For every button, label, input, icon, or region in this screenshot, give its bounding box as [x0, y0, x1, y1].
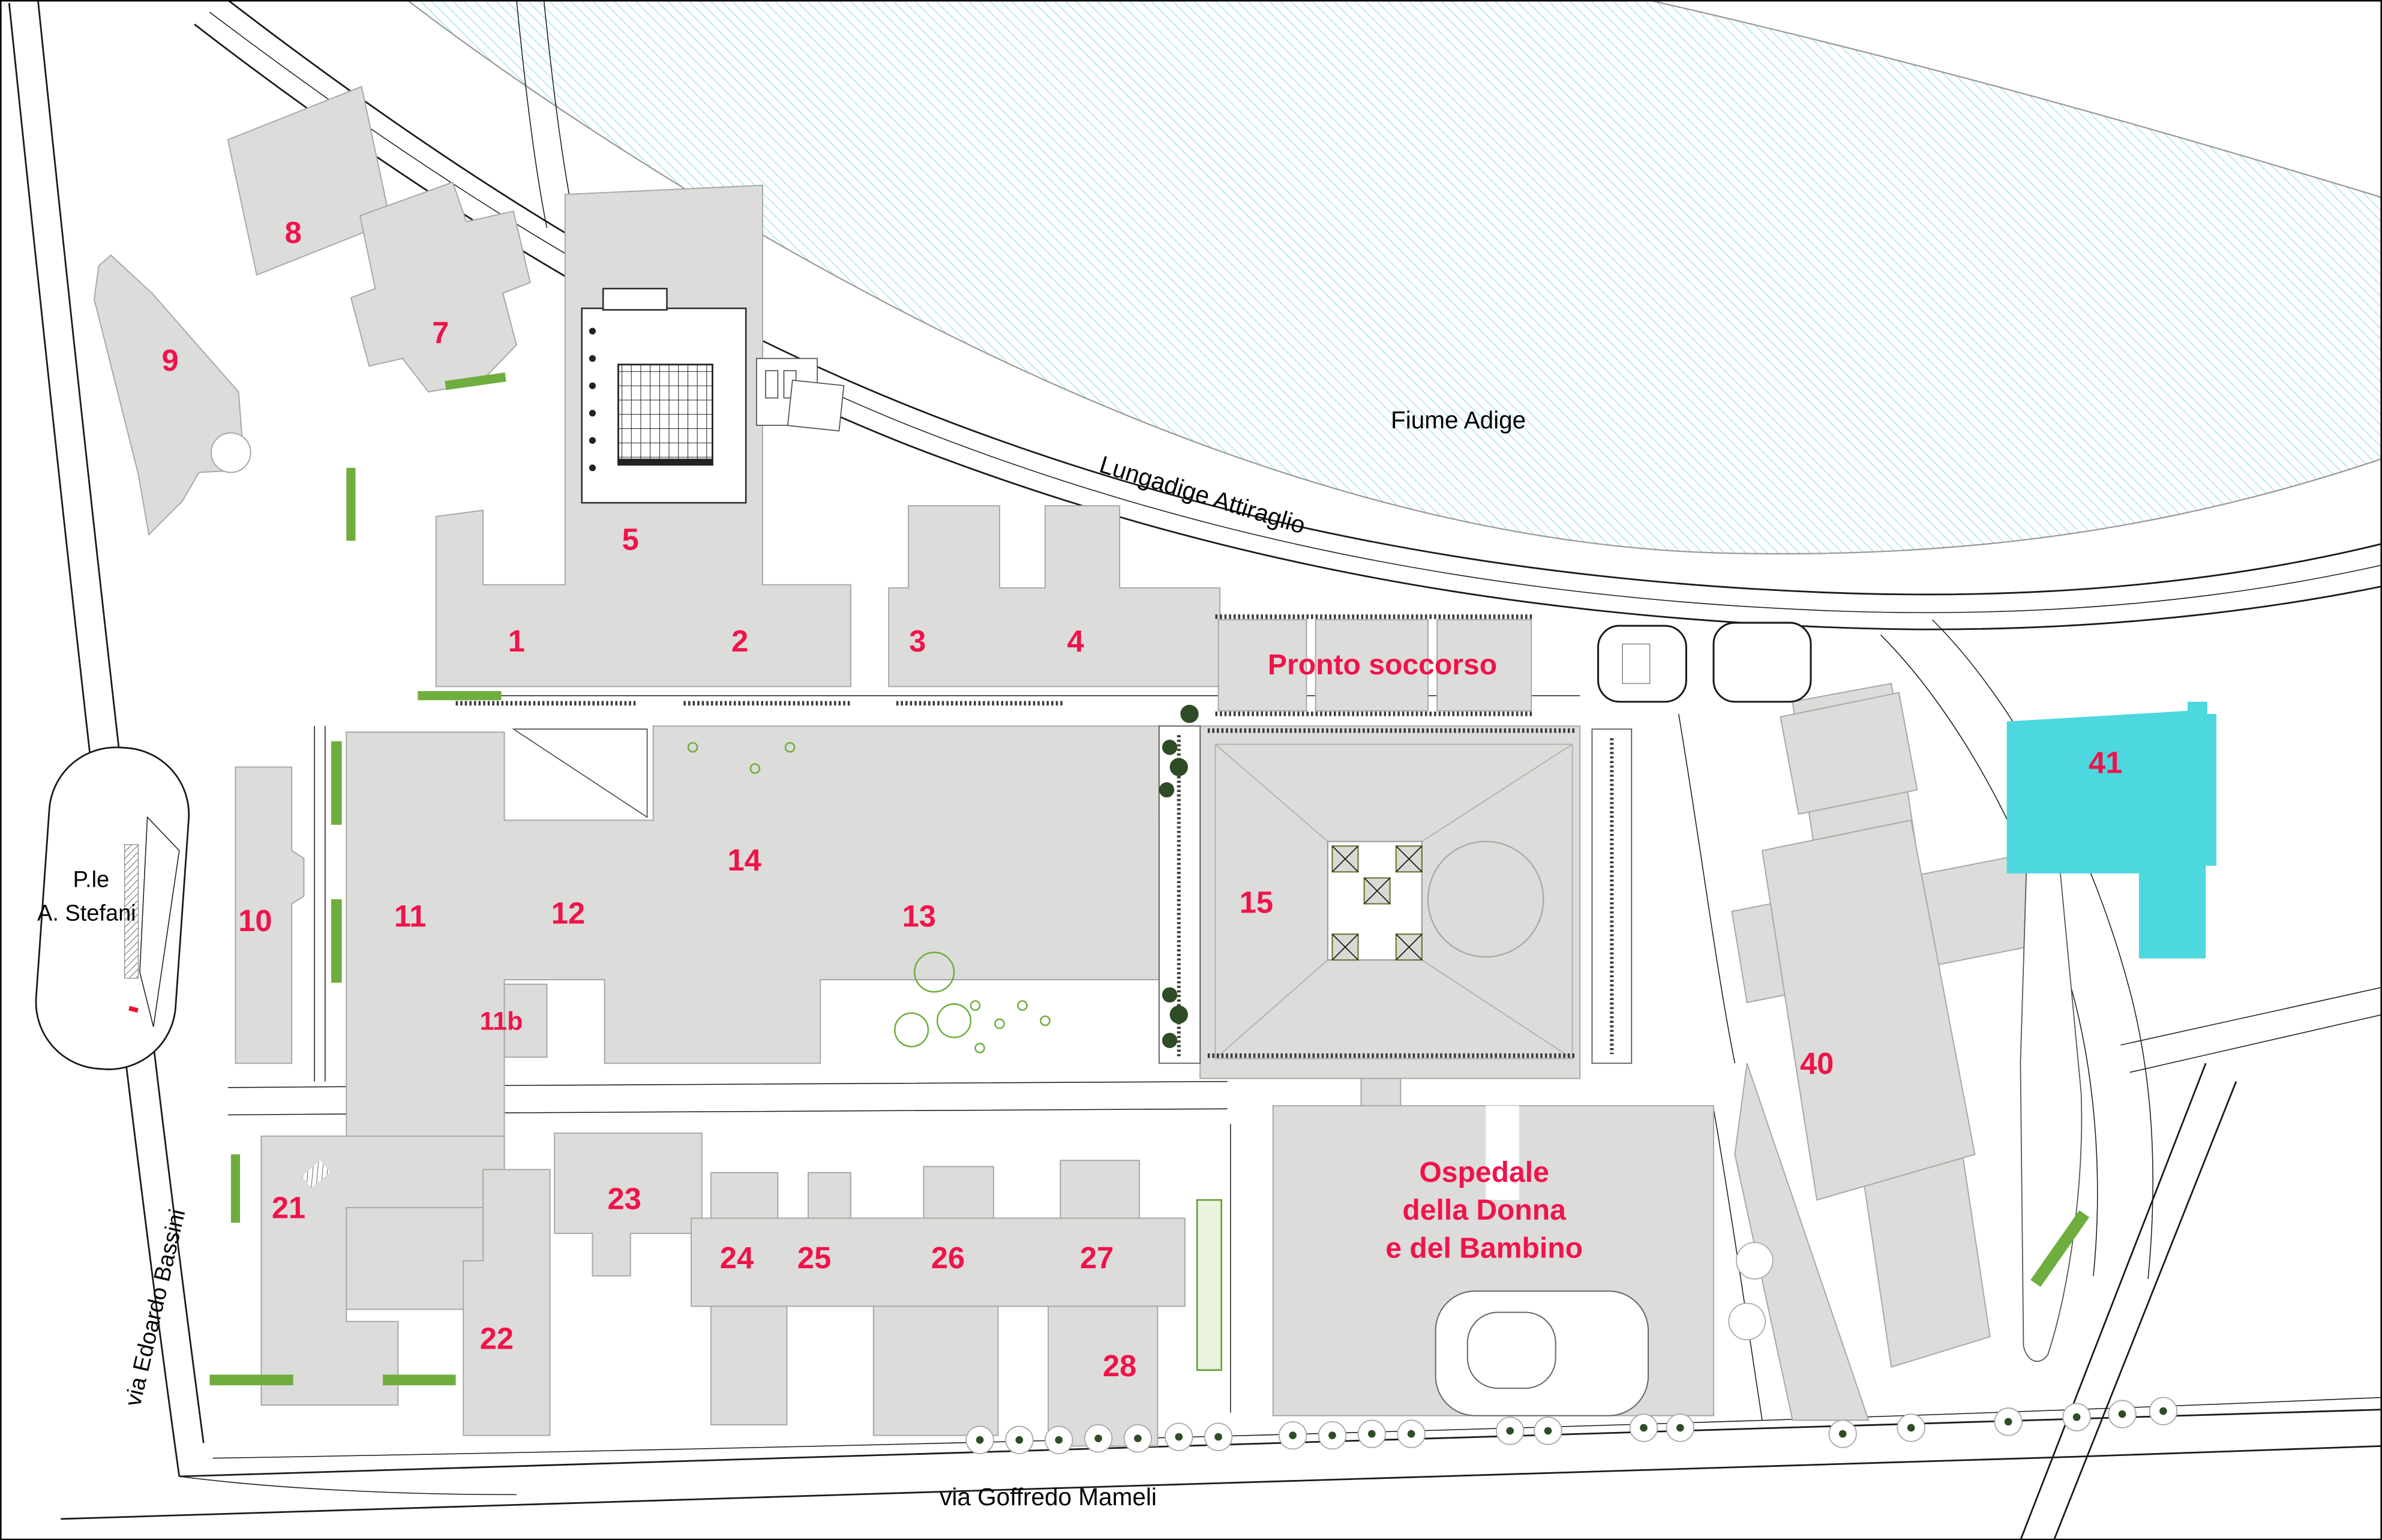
label-b14: 14 — [727, 843, 761, 877]
label-ospedale1: Ospedale — [1419, 1156, 1549, 1188]
campus-map: 12345789101111b1213141521222324252627284… — [0, 0, 2382, 1540]
label-b25: 25 — [797, 1241, 831, 1275]
label-b13: 13 — [902, 899, 936, 933]
label-b7: 7 — [432, 316, 449, 350]
building-24-28-footprint — [691, 1160, 1185, 1446]
label-b2: 2 — [731, 624, 748, 658]
label-b1: 1 — [508, 624, 525, 658]
label-b10: 10 — [238, 903, 272, 938]
site-plan-svg: 12345789101111b1213141521222324252627284… — [0, 0, 2382, 1540]
building-15-footprint — [1200, 726, 1580, 1130]
label-b40: 40 — [1800, 1046, 1834, 1080]
label-ospedale3: e del Bambino — [1385, 1232, 1583, 1264]
label-b11b: 11b — [480, 1007, 523, 1036]
label-b12: 12 — [551, 896, 585, 930]
label-b11: 11 — [394, 899, 427, 933]
label-b28: 28 — [1103, 1349, 1136, 1383]
label-stefani1: P.le — [73, 867, 110, 893]
label-fiume: Fiume Adige — [1391, 406, 1526, 434]
label-b15: 15 — [1240, 885, 1273, 920]
grid-roof-building — [582, 289, 746, 503]
label-b41: 41 — [2089, 746, 2122, 780]
label-pronto: Pronto soccorso — [1268, 649, 1497, 681]
label-b4: 4 — [1067, 624, 1084, 658]
dome — [1428, 842, 1543, 957]
label-mameli: via Goffredo Mameli — [940, 1483, 1157, 1511]
label-b27: 27 — [1080, 1241, 1114, 1275]
label-b21: 21 — [272, 1191, 305, 1225]
label-b22: 22 — [480, 1321, 514, 1355]
label-b26: 26 — [931, 1241, 965, 1275]
label-b5: 5 — [622, 523, 639, 557]
label-b9: 9 — [161, 343, 178, 377]
label-ospedale2: della Donna — [1402, 1194, 1567, 1226]
label-stefani2: A. Stefani — [37, 900, 136, 926]
label-b8: 8 — [285, 215, 302, 250]
label-b23: 23 — [607, 1181, 641, 1215]
label-b3: 3 — [909, 624, 926, 658]
label-b24: 24 — [720, 1241, 754, 1275]
